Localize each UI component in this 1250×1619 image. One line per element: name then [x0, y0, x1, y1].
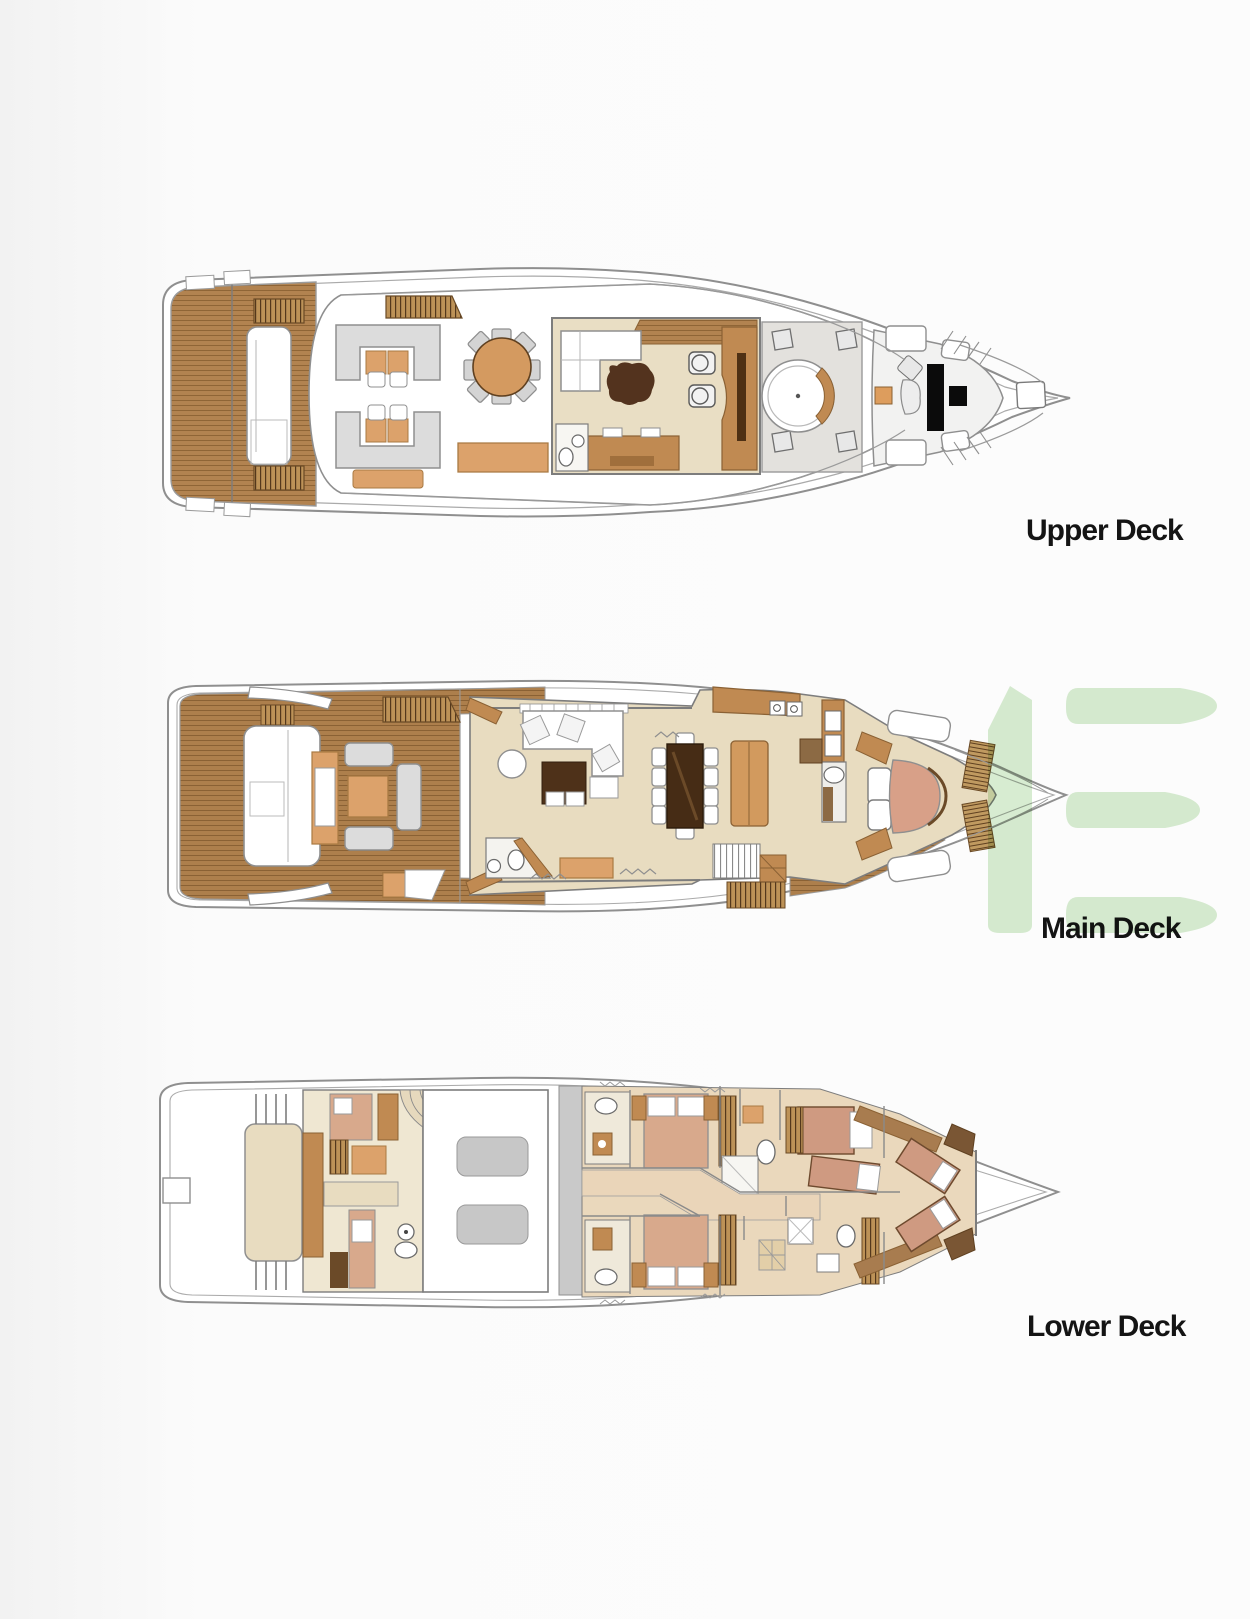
- svg-text:Lower Deck: Lower Deck: [1027, 1310, 1187, 1343]
- svg-text:Upper Deck: Upper Deck: [1026, 514, 1184, 547]
